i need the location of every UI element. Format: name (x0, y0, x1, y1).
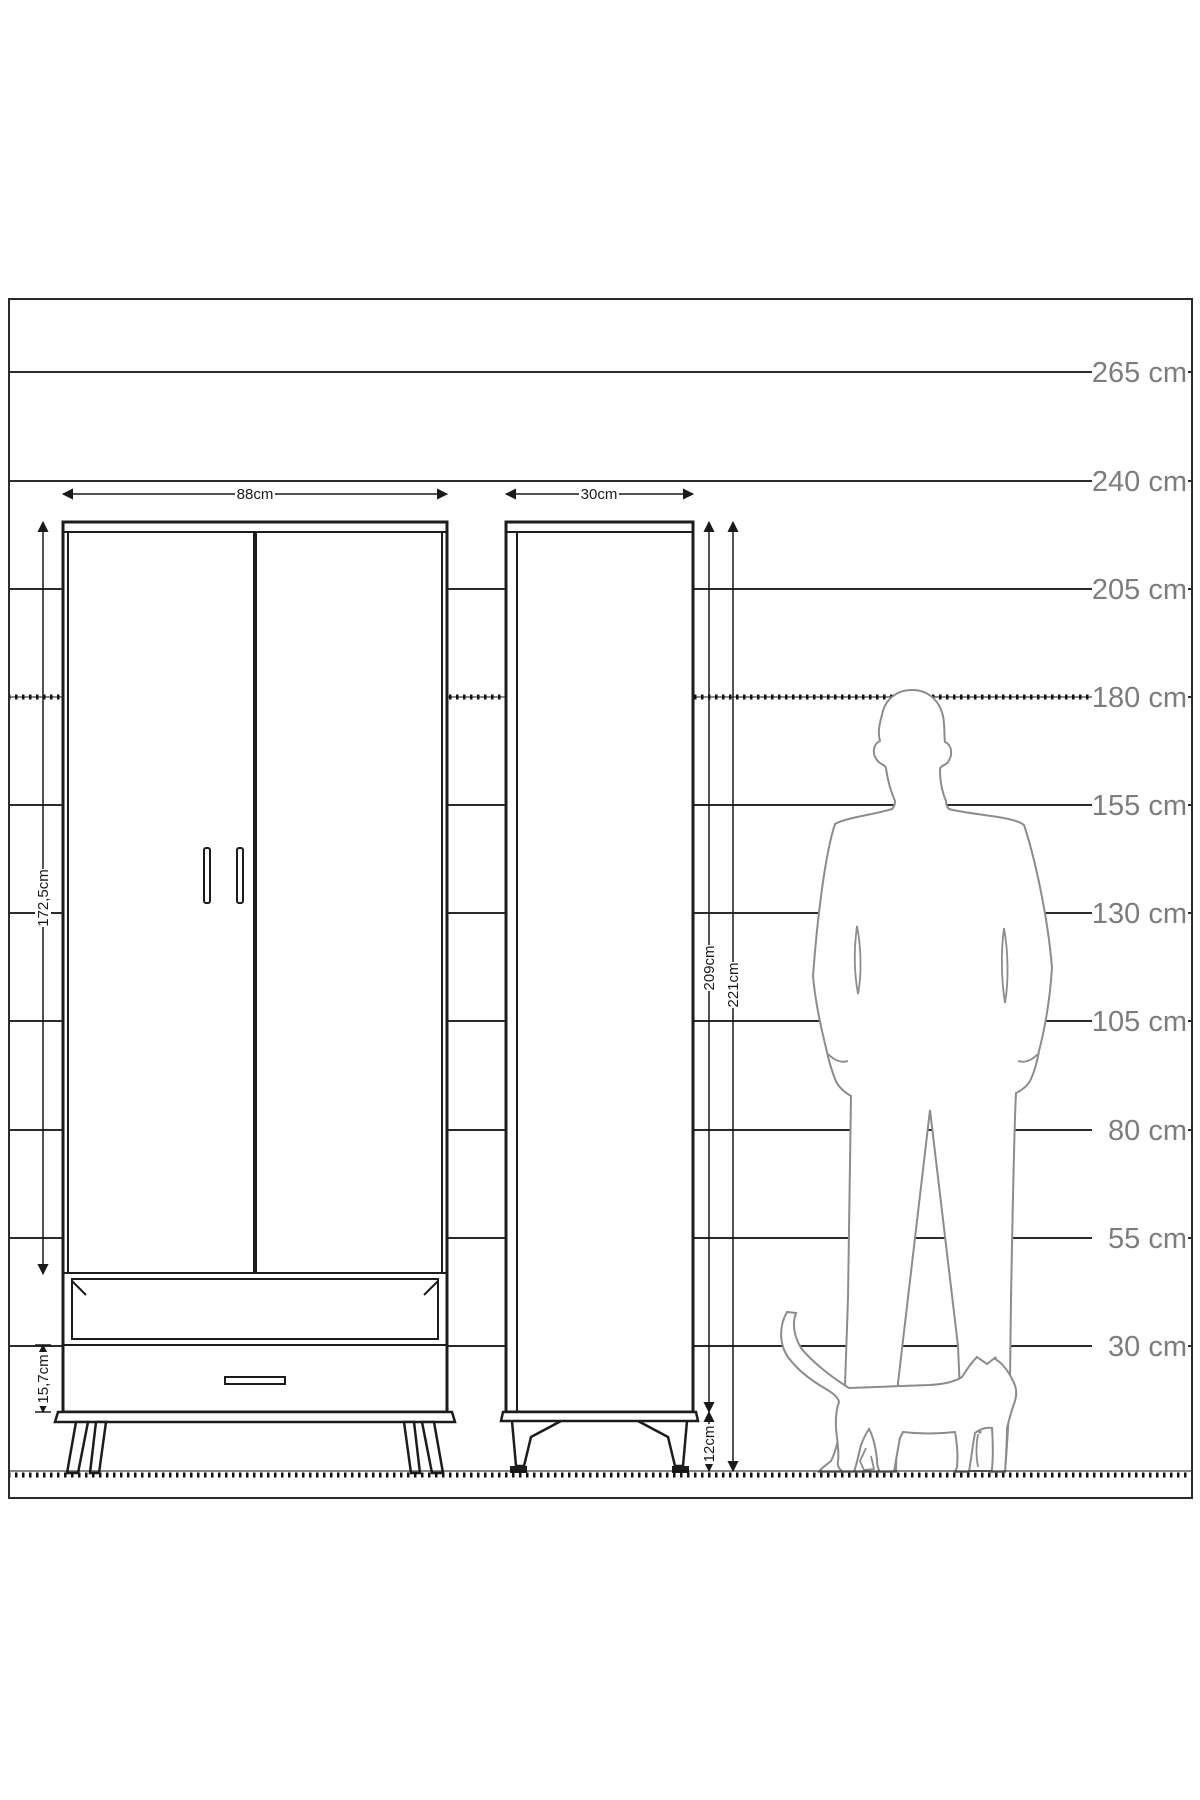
wardrobe (55, 522, 455, 1473)
wardrobe-open-shelf (72, 1279, 438, 1339)
scale-label-105: 105 cm (1092, 1006, 1187, 1038)
drawer-height-label: 15,7cm (35, 1354, 52, 1403)
scale-label-30: 30 cm (1108, 1331, 1187, 1363)
cabinet-leg-left (512, 1421, 561, 1466)
wardrobe-leg-right-outer (422, 1422, 443, 1473)
wardrobe-left-door-handle (204, 848, 210, 903)
cabinet-body (506, 522, 693, 1412)
leg-height-label: 12cm (701, 1426, 718, 1463)
cabinet-leg-right (638, 1421, 687, 1466)
cabinet-body-height-label: 209cm (701, 945, 718, 990)
scale-label-155: 155 cm (1092, 790, 1187, 822)
scale-label-80: 80 cm (1108, 1115, 1187, 1147)
cabinet-foot-right (672, 1466, 689, 1473)
scale-label-240: 240 cm (1092, 466, 1187, 498)
cabinet-width-label: 30cm (581, 486, 618, 503)
cat-chest-dot (978, 1430, 981, 1433)
dim-leg-height: 12cm (701, 1412, 718, 1471)
dim-wardrobe-door-height: 172,5cm (35, 522, 52, 1274)
screenshot-page: 265 cm 240 cm 205 cm 180 cm 155 cm 130 c… (0, 0, 1200, 1800)
cabinet-plinth (501, 1412, 698, 1421)
scale-label-205: 205 cm (1092, 574, 1187, 606)
wardrobe-width-label: 88cm (237, 486, 274, 503)
wardrobe-door-height-label: 172,5cm (35, 869, 52, 927)
man-silhouette (813, 690, 1052, 1472)
dim-cabinet-width: 30cm (506, 486, 693, 503)
scale-label-55: 55 cm (1108, 1223, 1187, 1255)
scale-label-130: 130 cm (1092, 898, 1187, 930)
dim-drawer-height: 15,7cm (35, 1345, 52, 1412)
wardrobe-leg-left-outer (67, 1422, 88, 1473)
scale-label-265: 265 cm (1092, 357, 1187, 389)
wardrobe-leg-left-inner (90, 1422, 106, 1473)
cabinet-total-height-label: 221cm (725, 962, 742, 1007)
dim-wardrobe-width: 88cm (63, 486, 447, 503)
furniture-dimension-diagram: 265 cm 240 cm 205 cm 180 cm 155 cm 130 c… (8, 298, 1193, 1499)
man-outline (813, 690, 1052, 1472)
dim-cabinet-body-height: 209cm (701, 522, 718, 1412)
wardrobe-plinth (55, 1412, 455, 1422)
scale-label-180: 180 cm (1092, 682, 1187, 714)
dim-cabinet-total-height: 221cm (725, 522, 742, 1471)
wardrobe-right-door-handle (237, 848, 243, 903)
scale-row-265: 265 cm (8, 357, 1193, 389)
wardrobe-leg-right-inner (404, 1422, 420, 1473)
floor-line (8, 1471, 1193, 1475)
cabinet-foot-left (510, 1466, 527, 1473)
wardrobe-drawer-handle (225, 1377, 285, 1384)
narrow-cabinet (501, 522, 698, 1473)
